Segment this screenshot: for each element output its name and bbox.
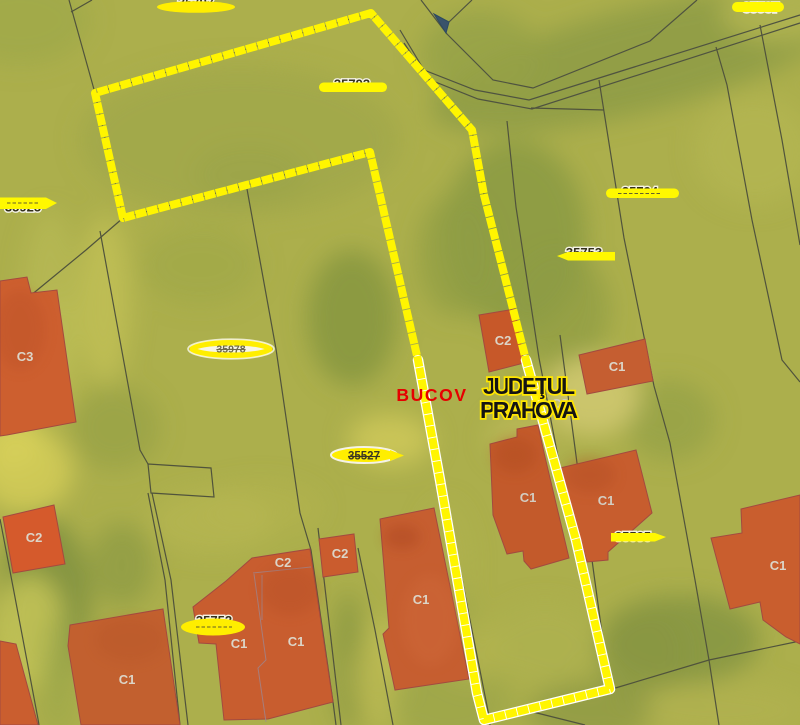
svg-text:C1: C1 — [413, 592, 430, 607]
svg-text:C1: C1 — [598, 493, 615, 508]
svg-text:35978: 35978 — [216, 344, 245, 356]
svg-text:PRAHOVA: PRAHOVA — [480, 397, 578, 423]
svg-text:C2: C2 — [275, 555, 292, 570]
svg-text:C2: C2 — [332, 546, 349, 561]
svg-text:C2: C2 — [495, 333, 512, 348]
svg-text:C1: C1 — [231, 636, 248, 651]
svg-text:BUCOV: BUCOV — [396, 385, 467, 405]
svg-text:C1: C1 — [520, 490, 537, 505]
svg-text:C1: C1 — [119, 672, 136, 687]
svg-text:C2: C2 — [26, 530, 43, 545]
svg-text:C1: C1 — [770, 558, 787, 573]
svg-text:C1: C1 — [288, 634, 305, 649]
svg-text:C3: C3 — [17, 349, 34, 364]
svg-text:35527: 35527 — [348, 451, 380, 463]
svg-text:C1: C1 — [609, 359, 626, 374]
svg-text:JUDEŢUL: JUDEŢUL — [483, 373, 575, 399]
